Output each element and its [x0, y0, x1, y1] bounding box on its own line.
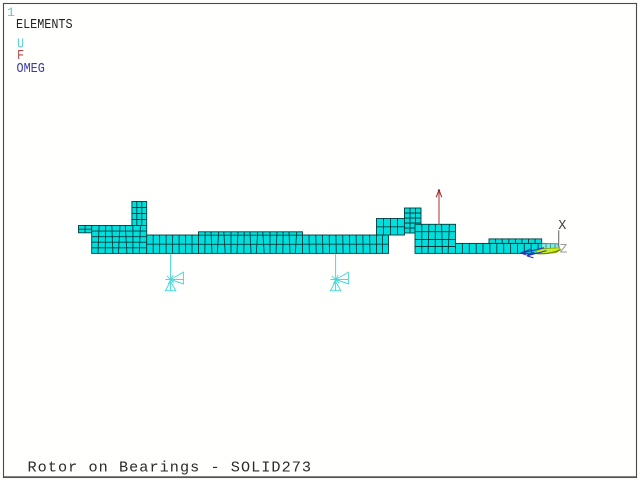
svg-text:1: 1 [7, 5, 15, 20]
svg-text:ELEMENTS: ELEMENTS [16, 16, 73, 32]
svg-text:X: X [558, 219, 566, 234]
svg-text:Rotor on Bearings - SOLID273: Rotor on Bearings - SOLID273 [28, 458, 313, 476]
svg-text:Z: Z [560, 242, 568, 257]
svg-text:OMEG: OMEG [17, 60, 45, 76]
